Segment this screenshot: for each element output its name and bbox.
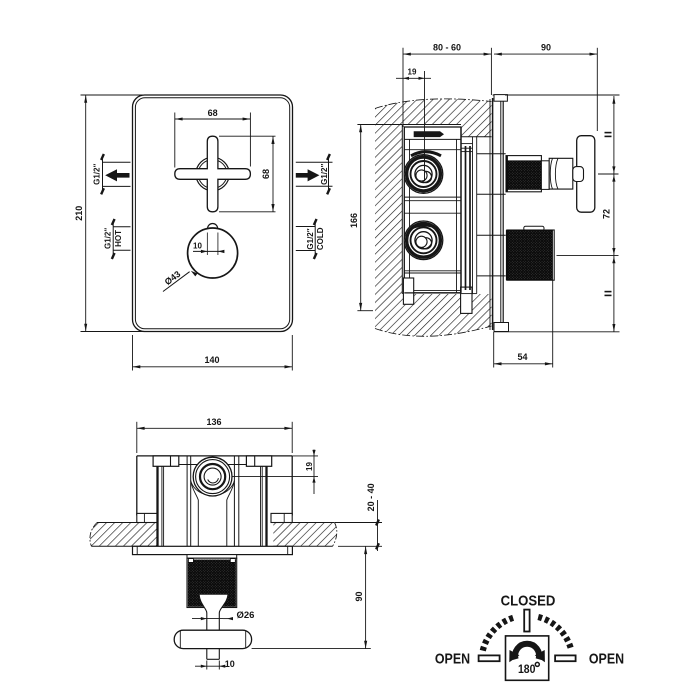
svg-text:68: 68 [261,169,271,179]
svg-text:90: 90 [541,43,551,53]
svg-text:Ø26: Ø26 [237,610,255,621]
svg-text:COLD: COLD [316,227,325,250]
svg-text:54: 54 [517,352,527,362]
svg-text:10: 10 [225,659,235,669]
svg-text:136: 136 [206,417,221,427]
svg-text:90: 90 [354,591,364,601]
svg-text:CLOSED: CLOSED [501,593,556,610]
svg-text:72: 72 [601,209,611,219]
svg-text:10: 10 [193,242,202,251]
svg-text:OPEN: OPEN [435,651,470,668]
svg-text:G1/2″: G1/2″ [93,164,102,185]
svg-text:19: 19 [305,462,314,471]
svg-text:19: 19 [408,68,417,77]
svg-text:140: 140 [204,355,219,365]
svg-text:68: 68 [208,108,218,118]
svg-text:166: 166 [349,213,359,228]
svg-text:G1/2″: G1/2″ [320,164,329,185]
svg-text:80 - 60: 80 - 60 [433,43,461,53]
svg-text:G1/2″: G1/2″ [306,228,315,249]
svg-text:HOT: HOT [114,230,123,247]
svg-text:180: 180 [518,662,536,676]
svg-text:OPEN: OPEN [589,651,624,668]
svg-text:G1/2″: G1/2″ [104,228,113,249]
svg-text:210: 210 [74,206,84,221]
svg-text:20 - 40: 20 - 40 [366,483,376,511]
